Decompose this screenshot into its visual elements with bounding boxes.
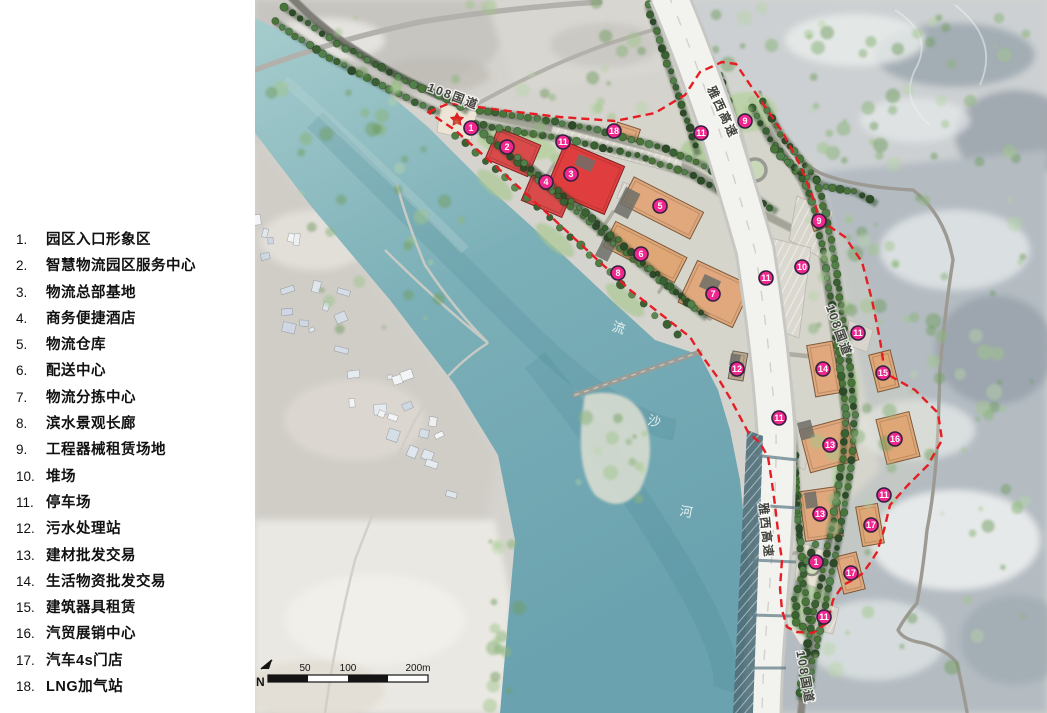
tree-icon (849, 396, 857, 404)
vegetation-blob (354, 16, 358, 20)
tree-icon (576, 205, 581, 210)
village-building (347, 370, 360, 379)
vegetation-blob (982, 520, 995, 533)
tree-icon (850, 403, 857, 410)
tree-icon (568, 198, 574, 204)
tree-icon (656, 37, 663, 44)
tree-icon (411, 99, 418, 106)
vegetation-blob (944, 660, 959, 675)
tree-icon (819, 203, 826, 210)
tree-icon (549, 134, 555, 140)
legend-item: 10.堆场 (16, 464, 255, 490)
map-marker-14: 14 (816, 362, 830, 376)
vegetation-blob (423, 316, 428, 321)
tree-icon (655, 144, 661, 150)
tree-icon (410, 81, 418, 89)
tree-icon (814, 592, 821, 599)
marker-number: 4 (543, 177, 548, 187)
scale-tick-50: 50 (299, 663, 311, 674)
tree-icon (784, 159, 790, 165)
tree-icon (555, 187, 561, 193)
tree-icon (403, 78, 409, 84)
tree-icon (280, 3, 288, 11)
vegetation-blob (465, 0, 474, 9)
tree-icon (848, 379, 856, 387)
vegetation-blob (428, 260, 434, 266)
tree-icon (826, 577, 834, 585)
tree-icon (793, 603, 801, 611)
legend-item-number: 10. (16, 464, 46, 490)
tree-icon (403, 94, 410, 101)
vegetation-blob (903, 316, 910, 323)
tree-icon (514, 154, 520, 160)
legend-item-number: 9. (16, 437, 46, 463)
vegetation-blob (907, 613, 918, 624)
map-marker-13: 13 (813, 507, 827, 521)
tree-icon (823, 550, 831, 558)
tree-icon (791, 596, 797, 602)
tree-icon (607, 147, 613, 153)
tree-icon (662, 145, 670, 153)
tree-icon (822, 264, 830, 272)
vegetation-blob (826, 130, 834, 138)
vegetation-blob (404, 240, 413, 249)
tree-icon (364, 57, 371, 64)
vegetation-blob (892, 43, 904, 55)
legend-item-label: 商务便捷酒店 (46, 306, 136, 332)
map-marker-11: 11 (817, 610, 831, 624)
vegetation-blob (534, 121, 546, 133)
vegetation-blob (635, 102, 648, 115)
tree-icon (334, 58, 341, 65)
legend-item-number: 3. (16, 280, 46, 306)
legend-item-label: 工程器械租赁场地 (46, 437, 166, 463)
vegetation-blob (335, 324, 345, 334)
vegetation-blob (808, 323, 819, 334)
tree-icon (837, 372, 845, 380)
legend-item: 4.商务便捷酒店 (16, 306, 255, 332)
tree-icon (816, 232, 823, 239)
tree-icon (379, 82, 386, 89)
vegetation-blob (935, 330, 947, 342)
tree-icon (859, 193, 865, 199)
vegetation-blob (494, 644, 504, 654)
legend-item: 9.工程器械租赁场地 (16, 437, 255, 463)
vegetation-blob (983, 410, 994, 421)
legend-item: 6.配送中心 (16, 358, 255, 384)
scale-tick-100: 100 (340, 663, 357, 674)
vegetation-blob (961, 447, 967, 453)
vegetation-blob (818, 271, 830, 283)
vegetation-blob (886, 89, 901, 104)
legend-item-label: 物流仓库 (46, 332, 106, 358)
tree-icon (667, 163, 673, 169)
legend-item-label: 汽车4s门店 (46, 648, 123, 674)
legend-item-number: 5. (16, 332, 46, 358)
vegetation-blob (884, 241, 894, 251)
vegetation-blob (920, 195, 931, 206)
tree-icon (707, 182, 713, 188)
map-marker-6: 6 (634, 247, 648, 261)
marker-number: 6 (638, 249, 643, 259)
tree-icon (420, 102, 426, 108)
marker-number: 11 (879, 490, 889, 500)
vegetation-blob (899, 644, 904, 649)
tree-icon (827, 293, 833, 299)
vegetation-blob (642, 431, 648, 437)
tree-icon (682, 169, 688, 175)
vegetation-blob (512, 601, 526, 615)
vegetation-blob (394, 185, 403, 194)
tree-icon (794, 585, 802, 593)
vegetation-blob (639, 466, 647, 474)
vegetation-blob (549, 94, 556, 101)
vegetation-blob (941, 120, 949, 128)
vegetation-blob (997, 48, 1012, 63)
vegetation-blob (390, 82, 402, 94)
tree-icon (517, 113, 523, 119)
legend-item: 1.园区入口形象区 (16, 227, 255, 253)
tree-icon (418, 85, 426, 93)
tree-icon (822, 602, 829, 609)
tree-icon (829, 569, 835, 575)
vegetation-blob (403, 290, 413, 300)
vegetation-blob (613, 414, 623, 424)
tree-icon (480, 121, 487, 128)
vegetation-blob (594, 447, 602, 455)
scale-tick-200: 200m (405, 663, 430, 674)
north-label: N (256, 675, 265, 689)
tree-icon (844, 188, 851, 195)
tree-icon (686, 155, 692, 161)
tree-icon (559, 121, 565, 127)
vegetation-blob (493, 636, 501, 644)
vegetation-blob (1000, 406, 1007, 413)
tree-icon (842, 420, 848, 426)
tree-icon (568, 121, 576, 129)
vegetation-blob (991, 347, 1005, 361)
tree-icon (845, 484, 852, 491)
tree-icon (654, 28, 661, 35)
map-marker-13: 13 (823, 438, 837, 452)
vegetation-blob (864, 499, 874, 509)
map-marker-10: 10 (795, 260, 809, 274)
tree-icon (839, 387, 847, 395)
tree-icon (846, 358, 852, 364)
tree-icon (808, 197, 816, 205)
tree-icon (797, 539, 804, 546)
tree-icon (489, 124, 495, 130)
vegetation-blob (491, 599, 498, 606)
vegetation-blob (862, 404, 872, 414)
tree-icon (815, 184, 823, 192)
vegetation-blob (1000, 565, 1006, 571)
vegetation-blob (394, 163, 405, 174)
vegetation-blob (864, 549, 871, 556)
vegetation-blob (433, 293, 445, 305)
tree-icon (556, 224, 563, 231)
vegetation-blob (365, 122, 380, 137)
vegetation-blob (809, 106, 816, 113)
legend-item-label: 停车场 (46, 490, 91, 516)
vegetation-blob (883, 404, 897, 418)
tree-icon (289, 10, 296, 17)
tree-icon (835, 482, 842, 489)
vegetation-blob (820, 26, 834, 40)
legend-list: 1.园区入口形象区2.智慧物流园区服务中心3.物流总部基地4.商务便捷酒店5.物… (0, 0, 255, 700)
marker-number: 11 (761, 273, 771, 283)
vegetation-blob (576, 479, 582, 485)
vegetation-blob (926, 326, 936, 336)
tree-icon (851, 188, 856, 193)
marker-number: 8 (615, 268, 620, 278)
tree-icon (794, 516, 801, 523)
marker-number: 11 (696, 128, 706, 138)
tree-icon (803, 590, 809, 596)
tree-icon (582, 141, 588, 147)
tree-icon (646, 11, 654, 19)
tree-icon (693, 143, 699, 149)
tree-icon (846, 363, 853, 370)
tree-icon (652, 312, 658, 318)
tree-icon (836, 294, 843, 301)
vegetation-blob (382, 325, 387, 330)
tree-icon (792, 618, 800, 626)
tree-icon (525, 114, 532, 121)
tree-icon (655, 271, 660, 276)
vegetation-blob (579, 410, 594, 425)
tree-icon (319, 31, 325, 37)
legend-item-number: 17. (16, 648, 46, 674)
legend-item-number: 11. (16, 490, 46, 516)
vegetation-blob (874, 223, 878, 227)
tree-icon (824, 543, 830, 549)
tree-icon (841, 429, 849, 437)
tree-icon (836, 365, 844, 373)
tree-icon (348, 67, 356, 75)
vegetation-blob (977, 344, 993, 360)
tree-icon (372, 78, 380, 86)
village-building (293, 233, 300, 245)
vegetation-blob (845, 630, 850, 635)
vegetation-blob (515, 83, 530, 98)
map-marker-1: 1 (464, 121, 478, 135)
tree-icon (305, 20, 311, 26)
legend-item: 14.生活物资批发交易 (16, 569, 255, 595)
legend-item: 18.LNG加气站 (16, 674, 255, 700)
tree-icon (285, 28, 292, 35)
tree-icon (816, 627, 824, 635)
vegetation-blob (994, 13, 1004, 23)
marker-number: 13 (815, 509, 825, 519)
marker-number: 3 (568, 169, 573, 179)
legend-item-number: 14. (16, 569, 46, 595)
tree-icon (698, 310, 703, 315)
village-building (299, 320, 308, 327)
vegetation-blob (925, 37, 935, 47)
tree-icon (852, 412, 859, 419)
tree-icon (663, 60, 671, 68)
vegetation-blob (891, 259, 900, 268)
vegetation-blob (483, 699, 497, 713)
legend-item-label: LNG加气站 (46, 674, 123, 700)
tree-icon (534, 115, 541, 122)
legend-item-label: 生活物资批发交易 (46, 569, 166, 595)
map-marker-11: 11 (772, 411, 786, 425)
map-marker-7: 7 (706, 287, 720, 301)
vegetation-blob (361, 108, 370, 117)
legend-item-label: 建材批发交易 (46, 543, 136, 569)
tree-icon (846, 473, 853, 480)
legend-item: 5.物流仓库 (16, 332, 255, 358)
tree-icon (834, 270, 842, 278)
vegetation-blob (1007, 198, 1012, 203)
tree-icon (528, 166, 534, 172)
tree-icon (378, 63, 386, 71)
legend-item-label: 汽贸展销中心 (46, 621, 136, 647)
tree-icon (486, 136, 494, 144)
tree-icon (839, 380, 846, 387)
legend-item: 11.停车场 (16, 490, 255, 516)
marker-number: 15 (878, 368, 888, 378)
tree-icon (843, 411, 851, 419)
tree-icon (279, 25, 285, 31)
vegetation-blob (940, 512, 944, 516)
vegetation-blob (603, 465, 618, 480)
vegetation-blob (307, 222, 317, 232)
tree-icon (830, 508, 838, 516)
tree-icon (495, 125, 503, 133)
vegetation-blob (970, 629, 984, 643)
vegetation-blob (325, 227, 335, 237)
vegetation-blob (875, 152, 883, 160)
village-building (349, 399, 355, 408)
vegetation-blob (334, 28, 342, 36)
vegetation-blob (810, 73, 818, 81)
vegetation-blob (628, 458, 636, 466)
legend-item-number: 12. (16, 516, 46, 542)
vegetation-blob (862, 101, 875, 114)
tree-icon (848, 456, 856, 464)
marker-number: 17 (866, 520, 876, 530)
tree-icon (674, 166, 682, 174)
tree-icon (834, 545, 839, 550)
tree-icon (342, 45, 349, 52)
vegetation-blob (606, 81, 610, 85)
legend-item-number: 18. (16, 674, 46, 700)
tree-icon (591, 142, 599, 150)
tree-icon (836, 286, 842, 292)
tree-icon (635, 152, 640, 157)
legend-item-number: 1. (16, 227, 46, 253)
vegetation-blob (506, 687, 512, 693)
vegetation-blob (963, 595, 972, 604)
marker-number: 11 (774, 413, 784, 423)
vegetation-blob (845, 215, 853, 223)
marker-number: 5 (657, 201, 662, 211)
legend-panel: 1.园区入口形象区2.智慧物流园区服务中心3.物流总部基地4.商务便捷酒店5.物… (0, 0, 255, 713)
river-char-3: 河 (678, 503, 694, 520)
vegetation-blob (375, 109, 389, 123)
vegetation-blob (993, 44, 997, 48)
vegetation-blob (975, 416, 980, 421)
legend-item-number: 7. (16, 385, 46, 411)
vegetation-blob (997, 380, 1002, 385)
tree-icon (837, 464, 844, 471)
vegetation-blob (969, 329, 983, 343)
tree-icon (835, 534, 843, 542)
legend-item: 2.智慧物流园区服务中心 (16, 253, 255, 279)
tree-icon (814, 636, 821, 643)
tree-icon (776, 152, 784, 160)
vegetation-blob (711, 10, 722, 21)
tree-icon (842, 501, 847, 506)
map-marker-11: 11 (556, 135, 570, 149)
vegetation-blob (1014, 500, 1022, 508)
tree-icon (828, 236, 835, 243)
vegetation-blob (605, 22, 609, 26)
marker-number: 9 (742, 116, 747, 126)
tree-icon (678, 101, 686, 109)
vegetation-blob (859, 49, 868, 58)
tree-icon (796, 532, 802, 538)
page: 1.园区入口形象区2.智慧物流园区服务中心3.物流总部基地4.商务便捷酒店5.物… (0, 0, 1047, 713)
tree-icon (830, 559, 838, 567)
tree-icon (803, 639, 811, 647)
legend-item-label: 污水处理站 (46, 516, 121, 542)
tree-icon (812, 541, 819, 548)
tree-icon (841, 404, 849, 412)
legend-item-label: 建筑器具租赁 (46, 595, 136, 621)
vegetation-blob (637, 47, 646, 56)
tree-icon (514, 127, 522, 135)
vegetation-blob (841, 157, 848, 164)
vegetation-blob (454, 120, 459, 125)
vegetation-blob (353, 276, 365, 288)
tree-icon (595, 220, 600, 225)
tree-icon (690, 172, 697, 179)
vegetation-blob (341, 60, 349, 68)
marker-number: 1 (813, 557, 818, 567)
tree-icon (829, 246, 835, 252)
vegetation-blob (1003, 144, 1017, 158)
vegetation-blob (594, 104, 603, 113)
map-marker-17: 17 (844, 566, 858, 580)
legend-item-number: 15. (16, 595, 46, 621)
tree-icon (582, 208, 590, 216)
vegetation-blob (878, 320, 883, 325)
tree-icon (521, 130, 527, 136)
vegetation-blob (828, 493, 840, 505)
marker-number: 13 (825, 440, 835, 450)
map-marker-11: 11 (759, 271, 773, 285)
tree-icon (805, 616, 811, 622)
tree-icon (825, 285, 831, 291)
tree-icon (649, 158, 656, 165)
tree-icon (509, 113, 515, 119)
map-marker-3: 3 (564, 167, 578, 181)
marker-number: 17 (846, 568, 856, 578)
map-marker-5: 5 (653, 199, 667, 213)
vegetation-blob (978, 506, 983, 511)
tree-icon (767, 137, 772, 142)
tree-icon (674, 331, 682, 339)
vegetation-blob (529, 72, 535, 78)
marker-number: 16 (890, 434, 900, 444)
tree-icon (832, 261, 840, 269)
tree-icon (757, 120, 763, 126)
map-marker-4: 4 (539, 175, 553, 189)
